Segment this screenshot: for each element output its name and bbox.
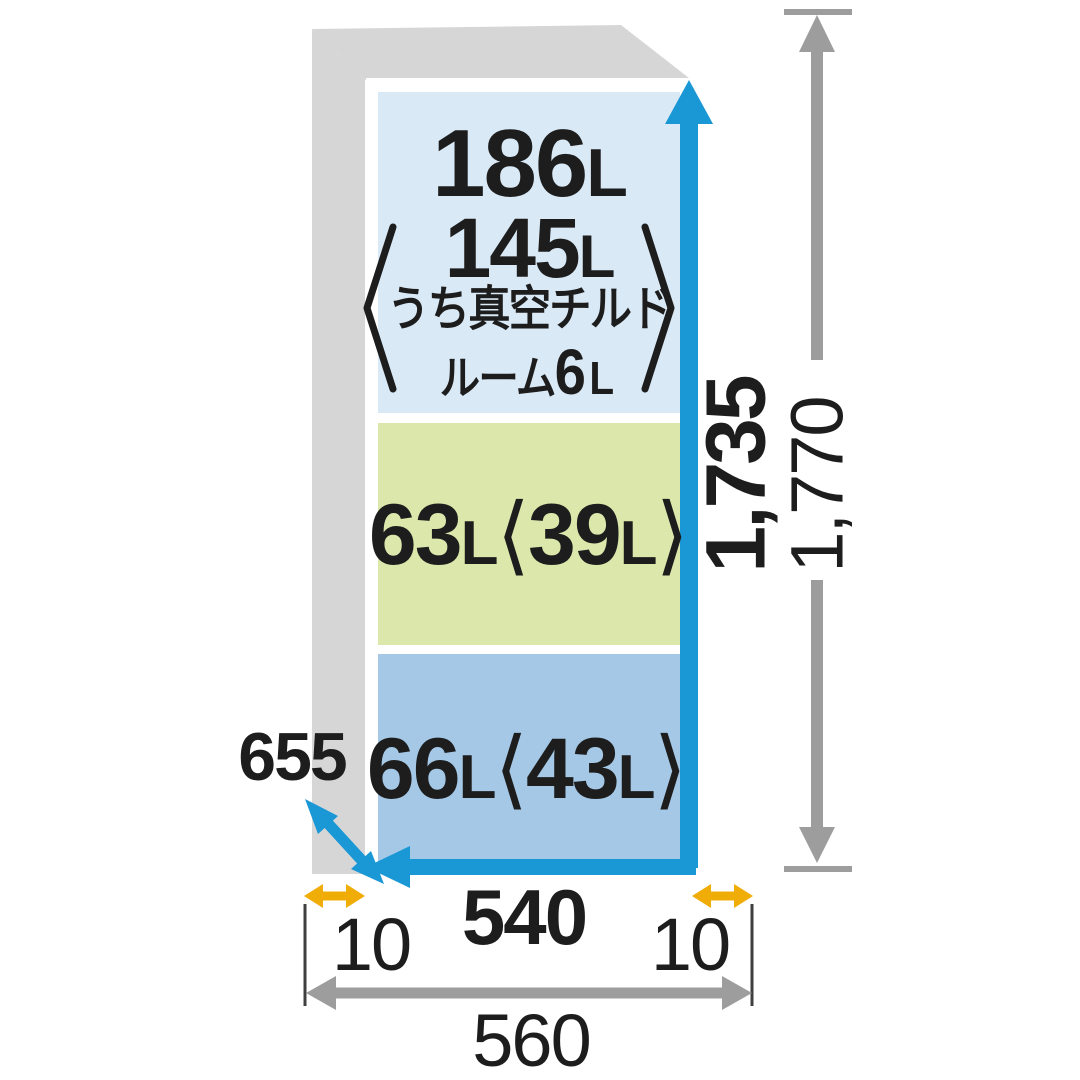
note-line2-unit: L: [589, 355, 612, 401]
main-fridge-capacity-value: 145: [445, 206, 579, 290]
main-total-capacity-label: 186L: [432, 116, 626, 212]
note-line2-value: 6: [555, 340, 585, 404]
note-line2-prefix: ルーム: [440, 355, 555, 401]
depth-dimension-label: 655: [238, 723, 345, 791]
vegetable-capacity-label: 63L⟨39L⟩: [369, 492, 687, 578]
main-total-capacity-unit: L: [586, 139, 626, 207]
right-clearance-label: 10: [651, 908, 729, 982]
angle-bracket-close: ⟩: [654, 726, 686, 812]
angle-bracket-open: ⟨: [494, 726, 526, 812]
total-height-dimension-label: 1,770: [779, 377, 854, 572]
vacuum-chilled-note-line1: うち真空チルド: [387, 286, 670, 334]
total-width-dimension-label: 560: [472, 1004, 589, 1078]
body-height-dimension-label: 1,735: [693, 377, 779, 572]
main-total-capacity-value: 186: [432, 116, 586, 212]
angle-bracket-open: ⟨: [496, 492, 528, 578]
refrigerator-dimension-diagram: 186L 145L うち真空チルド ルーム6L 63L⟨39L⟩ 66L⟨43L…: [0, 0, 1080, 1080]
total-height-shaft-top: [811, 50, 823, 360]
total-height-arrowhead-down-icon: [799, 827, 835, 863]
main-fridge-capacity-unit: L: [579, 227, 614, 287]
main-fridge-capacity-label: 145L: [445, 206, 614, 290]
body-width-dimension-label: 540: [462, 878, 586, 956]
height-dimension-labels: 1,735 1,770: [693, 377, 854, 572]
freezer-capacity-label: 66L⟨43L⟩: [367, 726, 685, 812]
angle-bracket-close: ⟩: [656, 492, 688, 578]
left-clearance-label: 10: [332, 908, 410, 982]
fridge-top-face: [312, 25, 689, 80]
vacuum-chilled-note-line2: ルーム6L: [440, 340, 613, 404]
total-height-arrowhead-up-icon: [799, 15, 835, 52]
clearance-arrowhead-right-icon: [734, 884, 753, 908]
total-height-shaft-bottom: [811, 580, 823, 832]
clearance-arrowhead-left-icon: [304, 884, 323, 908]
